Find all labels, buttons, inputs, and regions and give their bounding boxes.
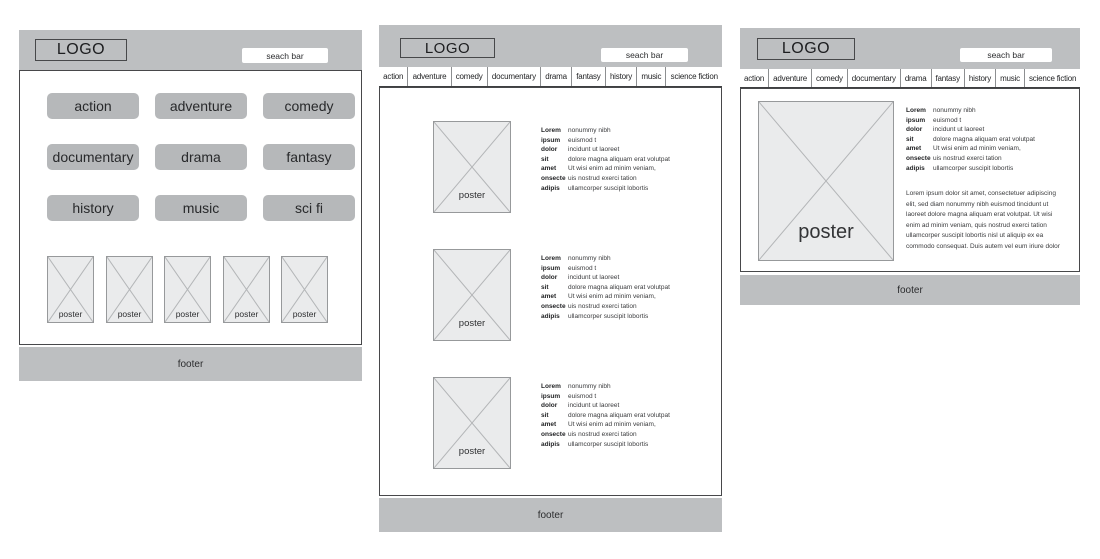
detail-label: onsecte bbox=[541, 174, 568, 184]
detail-value: uis nostrud exerci tation bbox=[568, 302, 637, 312]
category-button-history[interactable]: history bbox=[47, 195, 139, 221]
poster-thumbnail[interactable]: poster bbox=[164, 256, 211, 323]
detail-row: Loremnonummy nibh bbox=[541, 126, 670, 136]
detail-row: ipsumeuismod t bbox=[541, 392, 670, 402]
list-page-wireframe: LOGO seach bar action adventure comedy d… bbox=[379, 25, 722, 532]
home-footer: footer bbox=[19, 347, 362, 381]
logo-box: LOGO bbox=[35, 39, 127, 61]
detail-row: ipsumeuismod t bbox=[541, 136, 670, 146]
detail-label: onsecte bbox=[906, 154, 933, 164]
detail-value: Ut wisi enim ad minim veniam, bbox=[933, 144, 1021, 154]
detail-footer: footer bbox=[740, 275, 1080, 305]
detail-value: incidunt ut laoreet bbox=[933, 125, 984, 135]
poster-thumbnail[interactable]: poster bbox=[47, 256, 94, 323]
detail-label: adipis bbox=[906, 164, 933, 174]
search-bar[interactable]: seach bar bbox=[960, 48, 1052, 62]
search-placeholder: seach bar bbox=[987, 50, 1024, 60]
detail-value: incidunt ut laoreet bbox=[568, 145, 619, 155]
poster-thumbnail[interactable]: poster bbox=[281, 256, 328, 323]
nav-item-comedy[interactable]: comedy bbox=[811, 69, 847, 87]
detail-label: Lorem bbox=[541, 254, 568, 264]
detail-row: Loremnonummy nibh bbox=[906, 106, 1035, 116]
detail-value: euismod t bbox=[568, 392, 596, 402]
detail-content: poster Loremnonummy nibh ipsumeuismod t … bbox=[740, 88, 1080, 272]
movie-details: Loremnonummy nibh ipsumeuismod t dolorin… bbox=[906, 106, 1035, 173]
poster-label: poster bbox=[282, 309, 327, 319]
list-header: LOGO seach bar bbox=[379, 25, 722, 67]
home-page-wireframe: LOGO seach bar action adventure comedy d… bbox=[19, 30, 362, 381]
poster-label: poster bbox=[434, 318, 510, 329]
detail-label: Lorem bbox=[906, 106, 933, 116]
category-button-drama[interactable]: drama bbox=[155, 144, 247, 170]
nav-item-music[interactable]: music bbox=[636, 67, 665, 86]
wireframe-canvas: LOGO seach bar action adventure comedy d… bbox=[0, 0, 1100, 559]
detail-label: adipis bbox=[541, 440, 568, 450]
detail-row: onsecteuis nostrud exerci tation bbox=[906, 154, 1035, 164]
footer-label: footer bbox=[538, 510, 564, 521]
poster-label: poster bbox=[165, 309, 210, 319]
nav-item-comedy[interactable]: comedy bbox=[451, 67, 487, 86]
detail-header: LOGO seach bar bbox=[740, 28, 1080, 69]
detail-value: nonummy nibh bbox=[933, 106, 976, 116]
detail-label: dolor bbox=[541, 401, 568, 411]
detail-row: adipisullamcorper suscipit lobortis bbox=[541, 184, 670, 194]
detail-label: amet bbox=[541, 420, 568, 430]
detail-label: adipis bbox=[541, 184, 568, 194]
detail-label: Lorem bbox=[541, 126, 568, 136]
detail-value: ullamcorper suscipit lobortis bbox=[568, 440, 648, 450]
logo-box: LOGO bbox=[757, 38, 855, 60]
detail-row: ametUt wisi enim ad minim veniam, bbox=[541, 420, 670, 430]
detail-value: ullamcorper suscipit lobortis bbox=[568, 312, 648, 322]
poster-label: poster bbox=[48, 309, 93, 319]
detail-row: Loremnonummy nibh bbox=[541, 254, 670, 264]
poster-label: poster bbox=[434, 446, 510, 457]
detail-label: ipsum bbox=[906, 116, 933, 126]
detail-value: ullamcorper suscipit lobortis bbox=[933, 164, 1013, 174]
detail-label: dolor bbox=[541, 273, 568, 283]
detail-value: uis nostrud exerci tation bbox=[568, 430, 637, 440]
poster-thumbnail[interactable]: poster bbox=[106, 256, 153, 323]
detail-value: Ut wisi enim ad minim veniam, bbox=[568, 292, 656, 302]
nav-item-science-fiction[interactable]: science fiction bbox=[1024, 69, 1080, 87]
category-button-fantasy[interactable]: fantasy bbox=[263, 144, 355, 170]
nav-item-science-fiction[interactable]: science fiction bbox=[665, 67, 722, 86]
detail-row: adipisullamcorper suscipit lobortis bbox=[906, 164, 1035, 174]
detail-value: euismod t bbox=[568, 264, 596, 274]
detail-page-wireframe: LOGO seach bar action adventure comedy d… bbox=[740, 28, 1080, 305]
search-placeholder: seach bar bbox=[626, 50, 663, 60]
logo-text: LOGO bbox=[57, 41, 105, 59]
detail-value: dolore magna aliquam erat volutpat bbox=[568, 411, 670, 421]
detail-value: euismod t bbox=[933, 116, 961, 126]
nav-item-documentary[interactable]: documentary bbox=[847, 69, 900, 87]
nav-item-adventure[interactable]: adventure bbox=[407, 67, 450, 86]
detail-label: sit bbox=[906, 135, 933, 145]
category-button-music[interactable]: music bbox=[155, 195, 247, 221]
detail-row: onsecteuis nostrud exerci tation bbox=[541, 302, 670, 312]
category-button-adventure[interactable]: adventure bbox=[155, 93, 247, 119]
detail-row: ametUt wisi enim ad minim veniam, bbox=[541, 292, 670, 302]
nav-item-action[interactable]: action bbox=[379, 67, 407, 86]
detail-label: sit bbox=[541, 283, 568, 293]
logo-text: LOGO bbox=[425, 40, 470, 57]
nav-item-music[interactable]: music bbox=[995, 69, 1024, 87]
detail-value: incidunt ut laoreet bbox=[568, 401, 619, 411]
movie-details: Loremnonummy nibh ipsumeuismod t dolorin… bbox=[541, 254, 670, 321]
detail-row: adipisullamcorper suscipit lobortis bbox=[541, 440, 670, 450]
detail-label: adipis bbox=[541, 312, 568, 322]
nav-item-fantasy[interactable]: fantasy bbox=[571, 67, 605, 86]
nav-item-documentary[interactable]: documentary bbox=[487, 67, 540, 86]
genre-nav: action adventure comedy documentary dram… bbox=[740, 69, 1080, 88]
detail-row: sitdolore magna aliquam erat volutpat bbox=[541, 283, 670, 293]
poster-label: poster bbox=[434, 190, 510, 201]
category-button-scifi[interactable]: sci fi bbox=[263, 195, 355, 221]
nav-item-history[interactable]: history bbox=[605, 67, 636, 86]
detail-value: uis nostrud exerci tation bbox=[568, 174, 637, 184]
detail-label: sit bbox=[541, 155, 568, 165]
detail-label: sit bbox=[541, 411, 568, 421]
movie-details: Loremnonummy nibh ipsumeuismod t dolorin… bbox=[541, 126, 670, 193]
poster-label: poster bbox=[107, 309, 152, 319]
movie-details: Loremnonummy nibh ipsumeuismod t dolorin… bbox=[541, 382, 670, 449]
detail-value: incidunt ut laoreet bbox=[568, 273, 619, 283]
category-button-comedy[interactable]: comedy bbox=[263, 93, 355, 119]
poster-label: poster bbox=[224, 309, 269, 319]
detail-label: amet bbox=[906, 144, 933, 154]
detail-label: amet bbox=[541, 292, 568, 302]
detail-value: nonummy nibh bbox=[568, 382, 611, 392]
poster-large[interactable]: poster bbox=[758, 101, 894, 261]
nav-item-drama[interactable]: drama bbox=[900, 69, 931, 87]
detail-label: ipsum bbox=[541, 136, 568, 146]
logo-box: LOGO bbox=[400, 38, 495, 58]
nav-item-adventure[interactable]: adventure bbox=[768, 69, 811, 87]
search-bar[interactable]: seach bar bbox=[242, 48, 328, 63]
footer-label: footer bbox=[178, 359, 204, 370]
category-button-documentary[interactable]: documentary bbox=[47, 144, 139, 170]
footer-label: footer bbox=[897, 285, 923, 296]
detail-label: Lorem bbox=[541, 382, 568, 392]
detail-row: dolorincidunt ut laoreet bbox=[906, 125, 1035, 135]
list-content: poster Loremnonummy nibh ipsumeuismod t … bbox=[379, 87, 722, 496]
detail-label: amet bbox=[541, 164, 568, 174]
detail-row: ipsumeuismod t bbox=[541, 264, 670, 274]
list-footer: footer bbox=[379, 498, 722, 532]
detail-value: ullamcorper suscipit lobortis bbox=[568, 184, 648, 194]
detail-row: sitdolore magna aliquam erat volutpat bbox=[541, 155, 670, 165]
detail-label: dolor bbox=[906, 125, 933, 135]
poster-thumbnail[interactable]: poster bbox=[433, 377, 511, 469]
detail-value: dolore magna aliquam erat volutpat bbox=[568, 283, 670, 293]
detail-row: ametUt wisi enim ad minim veniam, bbox=[541, 164, 670, 174]
search-placeholder: seach bar bbox=[266, 51, 303, 61]
detail-value: dolore magna aliquam erat volutpat bbox=[933, 135, 1035, 145]
poster-thumbnail[interactable]: poster bbox=[433, 121, 511, 213]
poster-thumbnail[interactable]: poster bbox=[223, 256, 270, 323]
genre-nav: action adventure comedy documentary dram… bbox=[379, 67, 722, 87]
detail-row: dolorincidunt ut laoreet bbox=[541, 145, 670, 155]
movie-description: Lorem ipsum dolor sit amet, consectetuer… bbox=[906, 189, 1064, 252]
detail-value: euismod t bbox=[568, 136, 596, 146]
detail-value: uis nostrud exerci tation bbox=[933, 154, 1002, 164]
detail-label: onsecte bbox=[541, 302, 568, 312]
detail-value: dolore magna aliquam erat volutpat bbox=[568, 155, 670, 165]
detail-row: dolorincidunt ut laoreet bbox=[541, 401, 670, 411]
detail-label: ipsum bbox=[541, 264, 568, 274]
detail-row: sitdolore magna aliquam erat volutpat bbox=[541, 411, 670, 421]
nav-item-history[interactable]: history bbox=[964, 69, 995, 87]
detail-row: dolorincidunt ut laoreet bbox=[541, 273, 670, 283]
nav-item-fantasy[interactable]: fantasy bbox=[931, 69, 964, 87]
nav-item-drama[interactable]: drama bbox=[540, 67, 571, 86]
logo-text: LOGO bbox=[782, 40, 830, 58]
home-header: LOGO seach bar bbox=[19, 30, 362, 70]
detail-row: sitdolore magna aliquam erat volutpat bbox=[906, 135, 1035, 145]
detail-row: adipisullamcorper suscipit lobortis bbox=[541, 312, 670, 322]
detail-row: onsecteuis nostrud exerci tation bbox=[541, 430, 670, 440]
detail-row: onsecteuis nostrud exerci tation bbox=[541, 174, 670, 184]
detail-label: dolor bbox=[541, 145, 568, 155]
search-bar[interactable]: seach bar bbox=[601, 48, 688, 62]
detail-row: Loremnonummy nibh bbox=[541, 382, 670, 392]
detail-value: Ut wisi enim ad minim veniam, bbox=[568, 164, 656, 174]
detail-value: nonummy nibh bbox=[568, 126, 611, 136]
poster-label: poster bbox=[759, 221, 893, 244]
nav-item-action[interactable]: action bbox=[740, 69, 768, 87]
detail-label: onsecte bbox=[541, 430, 568, 440]
home-content: action adventure comedy documentary dram… bbox=[19, 70, 362, 345]
detail-row: ametUt wisi enim ad minim veniam, bbox=[906, 144, 1035, 154]
detail-value: Ut wisi enim ad minim veniam, bbox=[568, 420, 656, 430]
detail-row: ipsumeuismod t bbox=[906, 116, 1035, 126]
detail-value: nonummy nibh bbox=[568, 254, 611, 264]
category-button-action[interactable]: action bbox=[47, 93, 139, 119]
poster-thumbnail[interactable]: poster bbox=[433, 249, 511, 341]
detail-label: ipsum bbox=[541, 392, 568, 402]
